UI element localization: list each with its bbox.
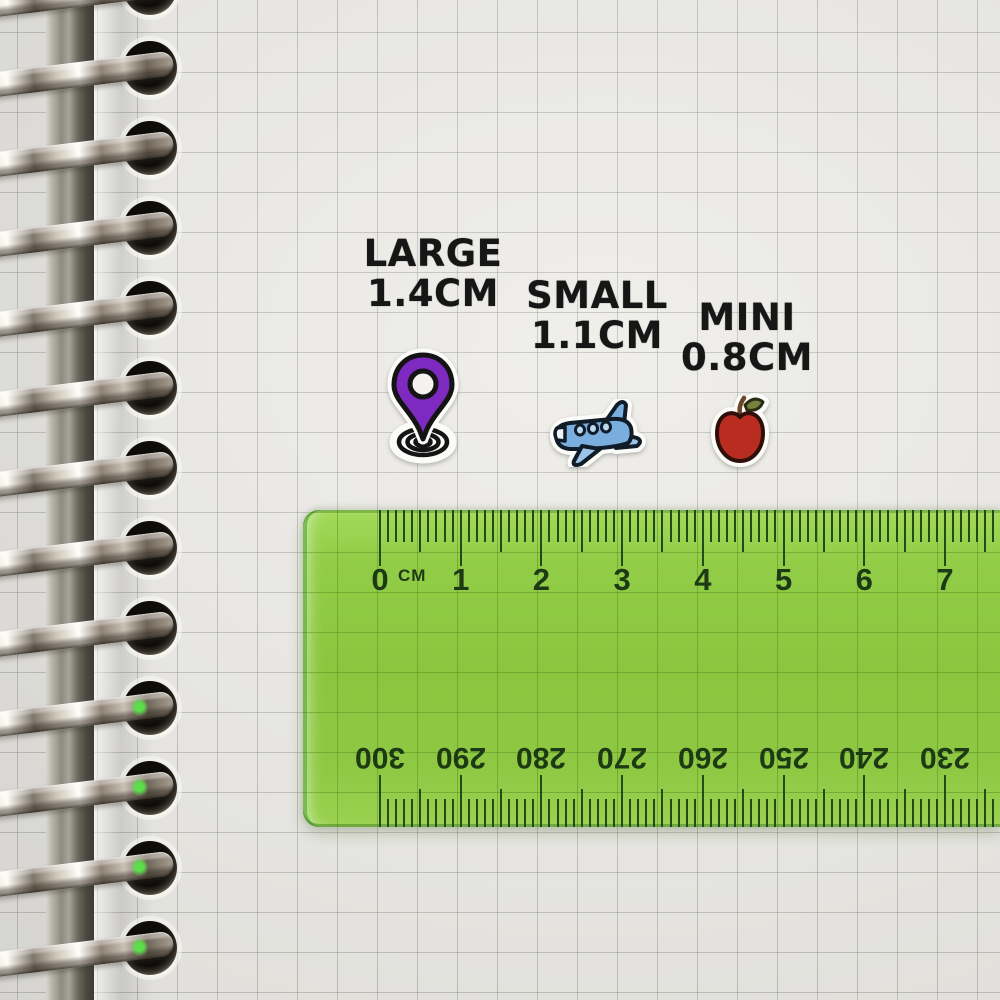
ruler-tick bbox=[565, 799, 567, 827]
location-pin-icon bbox=[383, 346, 463, 464]
ruler-tick bbox=[815, 799, 817, 827]
ruler-tick bbox=[758, 799, 760, 827]
ruler-tick bbox=[468, 799, 470, 827]
ruler-tick bbox=[839, 799, 841, 827]
ruler-tick bbox=[605, 799, 607, 827]
ruler-tick bbox=[992, 799, 994, 827]
apple-icon bbox=[709, 393, 771, 467]
ruler-tick bbox=[532, 799, 534, 827]
ruler-tick bbox=[557, 799, 559, 827]
sticker-airplane bbox=[543, 399, 649, 467]
ruler-tick bbox=[791, 799, 793, 827]
ruler-tick bbox=[912, 799, 914, 827]
ruler-mm-number-inverted: 240 bbox=[839, 740, 889, 774]
ruler-tick bbox=[613, 799, 615, 827]
ruler-tick bbox=[944, 775, 946, 827]
ruler-tick bbox=[783, 775, 785, 827]
ruler-tick bbox=[774, 799, 776, 827]
ruler-mm-number-inverted: 250 bbox=[759, 740, 809, 774]
ruler-tick bbox=[984, 789, 986, 827]
ruler-tick bbox=[710, 799, 712, 827]
ruler-tick bbox=[629, 799, 631, 827]
size-label-small-title: SMALL bbox=[512, 276, 682, 316]
ruler-tick bbox=[403, 799, 405, 827]
ruler-tick bbox=[661, 789, 663, 827]
ruler-tick bbox=[500, 789, 502, 827]
ruler-tick bbox=[597, 799, 599, 827]
ruler-mm-number-inverted: 300 bbox=[355, 740, 405, 774]
ruler-tick bbox=[686, 799, 688, 827]
ruler-tick bbox=[435, 799, 437, 827]
ruler-tick bbox=[871, 799, 873, 827]
ruler-tick bbox=[799, 799, 801, 827]
ruler-tick bbox=[548, 799, 550, 827]
ruler-tick bbox=[904, 789, 906, 827]
ruler-tick bbox=[460, 775, 462, 827]
size-label-mini-title: MINI bbox=[662, 298, 832, 338]
airplane-icon bbox=[543, 399, 649, 467]
ruler-tick bbox=[589, 799, 591, 827]
ruler-tick bbox=[887, 799, 889, 827]
ruler-scale-mm-inverted: 300290280270260250240230 bbox=[303, 510, 1000, 827]
ruler-tick bbox=[637, 799, 639, 827]
ruler-mm-number-inverted: 270 bbox=[597, 740, 647, 774]
size-label-mini: MINI 0.8CM bbox=[662, 298, 832, 378]
size-label-large-title: LARGE bbox=[348, 234, 518, 274]
ruler-tick bbox=[952, 799, 954, 827]
ruler-tick bbox=[936, 799, 938, 827]
ruler-tick bbox=[516, 799, 518, 827]
ruler-tick bbox=[718, 799, 720, 827]
size-label-small-size: 1.1CM bbox=[512, 316, 682, 356]
ruler-tick bbox=[678, 799, 680, 827]
ruler-tick bbox=[395, 799, 397, 827]
ruler-tick bbox=[863, 775, 865, 827]
ruler: 01234567CM 300290280270260250240230 bbox=[303, 510, 1000, 827]
ruler-tick bbox=[928, 799, 930, 827]
ruler-tick bbox=[653, 799, 655, 827]
ruler-tick bbox=[807, 799, 809, 827]
ring-green-reflection bbox=[130, 776, 148, 799]
ruler-tick bbox=[645, 799, 647, 827]
ruler-tick bbox=[766, 799, 768, 827]
ruler-tick bbox=[492, 799, 494, 827]
ruler-mm-number-inverted: 280 bbox=[516, 740, 566, 774]
ruler-tick bbox=[540, 775, 542, 827]
ring-green-reflection bbox=[130, 696, 148, 719]
ruler-mm-number-inverted: 290 bbox=[436, 740, 486, 774]
ring-green-reflection bbox=[130, 856, 148, 879]
scene: LARGE 1.4CM SMALL 1.1CM MINI 0.8CM bbox=[0, 0, 1000, 1000]
sticker-location-pin bbox=[383, 346, 463, 464]
ruler-tick bbox=[444, 799, 446, 827]
size-label-large: LARGE 1.4CM bbox=[348, 234, 518, 314]
ruler-tick bbox=[484, 799, 486, 827]
ruler-tick bbox=[847, 799, 849, 827]
ruler-tick bbox=[581, 789, 583, 827]
ruler-tick bbox=[896, 799, 898, 827]
ruler-tick bbox=[976, 799, 978, 827]
ruler-tick bbox=[379, 775, 381, 827]
ruler-tick bbox=[621, 775, 623, 827]
ruler-tick bbox=[427, 799, 429, 827]
ruler-tick bbox=[726, 799, 728, 827]
size-label-mini-size: 0.8CM bbox=[662, 338, 832, 378]
ruler-tick bbox=[960, 799, 962, 827]
ruler-mm-number-inverted: 230 bbox=[920, 740, 970, 774]
ruler-tick bbox=[452, 799, 454, 827]
ruler-tick bbox=[734, 799, 736, 827]
ruler-tick bbox=[855, 799, 857, 827]
size-label-small: SMALL 1.1CM bbox=[512, 276, 682, 356]
ruler-tick bbox=[476, 799, 478, 827]
ruler-tick bbox=[750, 799, 752, 827]
ruler-tick bbox=[524, 799, 526, 827]
sticker-apple bbox=[709, 393, 771, 467]
ruler-tick bbox=[920, 799, 922, 827]
ruler-tick bbox=[411, 799, 413, 827]
size-label-large-size: 1.4CM bbox=[348, 274, 518, 314]
ring-green-reflection bbox=[130, 936, 148, 959]
ruler-tick bbox=[508, 799, 510, 827]
ruler-tick bbox=[694, 799, 696, 827]
ruler-tick bbox=[702, 775, 704, 827]
ruler-tick bbox=[879, 799, 881, 827]
ruler-tick bbox=[823, 789, 825, 827]
ruler-tick bbox=[670, 799, 672, 827]
ruler-tick bbox=[573, 799, 575, 827]
ruler-tick bbox=[387, 799, 389, 827]
ruler-mm-number-inverted: 260 bbox=[678, 740, 728, 774]
ruler-tick bbox=[968, 799, 970, 827]
ruler-tick bbox=[831, 799, 833, 827]
ruler-tick bbox=[419, 789, 421, 827]
ruler-tick bbox=[742, 789, 744, 827]
